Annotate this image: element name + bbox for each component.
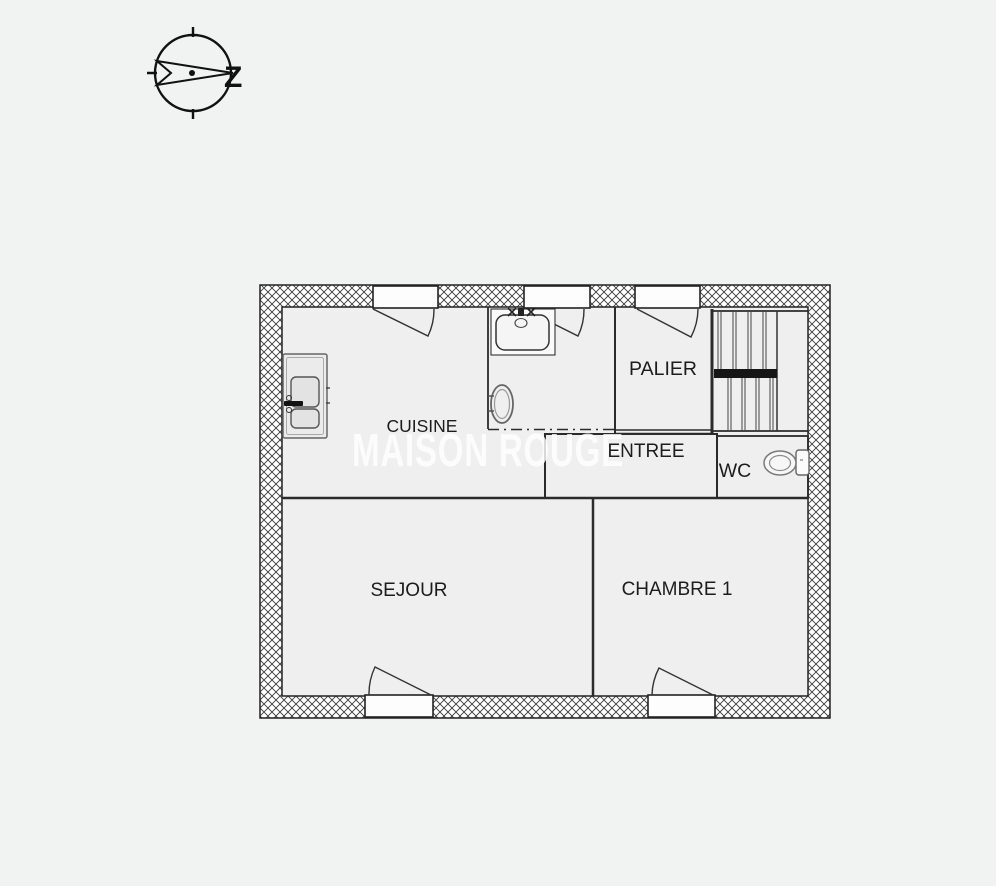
sink-faucet: [518, 308, 524, 316]
sink-icon: [491, 308, 555, 355]
sink-basin: [496, 315, 549, 350]
compass-label: Z: [224, 61, 242, 94]
stairs-landing-band: [714, 369, 777, 378]
appliance-handle: [284, 401, 303, 406]
floor-plan-drawing: Z: [0, 0, 996, 886]
compass-north-icon: [147, 27, 233, 119]
room-label-wc: WC: [719, 460, 752, 482]
toilet-icon: [764, 450, 809, 475]
room-label-cuisine: CUISINE: [387, 416, 458, 436]
room-label-palier: PALIER: [629, 358, 697, 380]
room-label-chambre1: CHAMBRE 1: [622, 579, 733, 600]
window-palier: [635, 286, 700, 308]
toilet-cistern: [796, 450, 809, 475]
window-cuisine: [373, 286, 438, 308]
appliance-door-lower: [291, 409, 319, 428]
floor-plan-page: Z: [0, 0, 996, 886]
compass-center-dot: [189, 70, 195, 76]
window-chambre: [648, 695, 715, 717]
window-bathroom: [524, 286, 590, 308]
window-sejour: [365, 695, 433, 717]
appliance-icon: [283, 354, 330, 438]
room-label-entree: ENTREE: [607, 441, 684, 462]
toilet-bowl-outer: [764, 451, 796, 475]
room-label-sejour: SEJOUR: [370, 580, 447, 601]
building-interior: [282, 307, 808, 696]
